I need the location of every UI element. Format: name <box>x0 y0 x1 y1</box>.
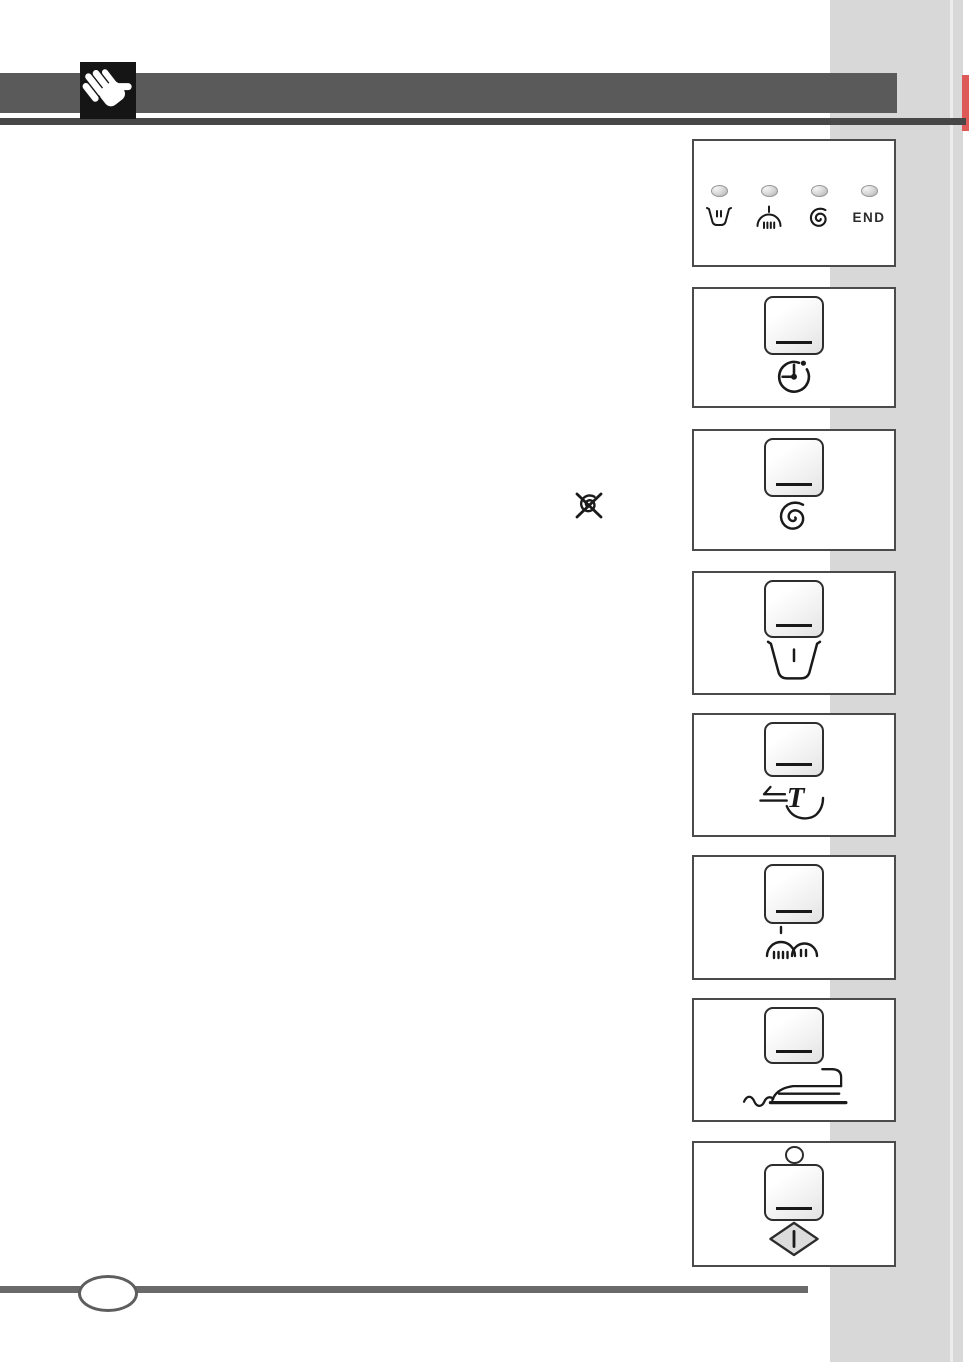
iron-icon <box>738 1064 850 1109</box>
led <box>861 185 878 197</box>
delay-start-box <box>692 287 896 408</box>
clock-delay-icon <box>774 355 814 395</box>
extra-rinse-button <box>764 864 824 924</box>
no-spin-icon <box>573 486 605 523</box>
hand-tile <box>80 62 136 119</box>
button-mark <box>776 341 812 344</box>
delay-start-button <box>764 296 824 355</box>
start-diamond-icon <box>767 1221 821 1257</box>
easy-iron-box <box>692 998 896 1122</box>
start-pause-button <box>764 1164 824 1221</box>
hand-icon <box>80 62 136 119</box>
button-mark <box>776 1207 812 1210</box>
time-t-icon: T <box>755 777 833 824</box>
manual-page: END <box>0 0 970 1367</box>
rinse-hold-button <box>764 580 824 638</box>
end-label: END <box>852 210 885 225</box>
side-band-highlight <box>950 0 953 1362</box>
spin-reduction-box <box>692 429 896 551</box>
button-mark <box>776 763 812 766</box>
start-led <box>785 1146 804 1164</box>
rinse-indicator <box>744 185 794 265</box>
led-row: END <box>694 141 894 265</box>
start-pause-box <box>692 1141 896 1267</box>
tub-hold-icon <box>765 638 823 682</box>
led <box>711 185 728 197</box>
tub-pause-icon <box>706 205 732 228</box>
quick-time-box: T <box>692 713 896 837</box>
spin-indicator <box>794 185 844 265</box>
double-rinse-icon <box>764 925 824 967</box>
quick-time-button <box>764 722 824 777</box>
page-number-oval <box>78 1275 138 1312</box>
spin-spiral-icon <box>806 205 833 232</box>
indicator-panel-box: END <box>692 139 896 267</box>
wash-pause-indicator <box>694 185 744 265</box>
extra-rinse-box <box>692 855 896 980</box>
led <box>811 185 828 197</box>
rinse-dome-icon <box>754 205 784 230</box>
rinse-hold-box <box>692 571 896 695</box>
end-indicator: END <box>844 185 894 265</box>
spiral-spin-icon <box>773 497 815 538</box>
spin-reduction-button <box>764 438 824 497</box>
header-rule <box>0 118 966 125</box>
button-mark <box>776 483 812 486</box>
button-mark <box>776 624 812 627</box>
easy-iron-button <box>764 1007 824 1064</box>
button-mark <box>776 910 812 913</box>
button-mark <box>776 1050 812 1053</box>
led <box>761 185 778 197</box>
